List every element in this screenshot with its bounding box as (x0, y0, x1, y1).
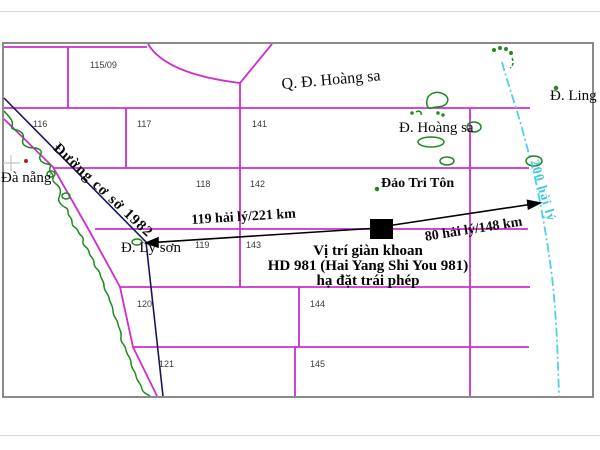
rig-caption-line1: Vị trí giàn khoan (267, 244, 469, 259)
block-117: 117 (137, 120, 151, 129)
rig-caption-line3: hạ đặt trái phép (267, 274, 469, 289)
label-tri-ton-island: Đảo Tri Tôn (381, 177, 454, 191)
block-119: 119 (195, 241, 209, 250)
block-118: 118 (196, 180, 210, 189)
block-142: 142 (250, 180, 265, 189)
block-144: 144 (310, 300, 325, 309)
da-nang-dot (24, 159, 28, 163)
label-da-nang: Đà nẵng (1, 171, 51, 186)
block-143: 143 (246, 241, 261, 250)
block-116: 116 (33, 120, 47, 129)
block-141: 141 (252, 120, 267, 129)
block-121: 121 (159, 360, 174, 369)
block-115-09: 115/09 (90, 61, 117, 70)
label-ly-son-island: Đ. Lý sơn (121, 241, 181, 256)
block-145: 145 (310, 360, 325, 369)
label-ling-island: Đ. Ling (550, 89, 597, 104)
label-hoang-sa-island: Đ. Hoàng sa (399, 121, 474, 136)
rig-marker (370, 219, 393, 239)
rig-caption: Vị trí giàn khoan HD 981 (Hai Yang Shi Y… (267, 244, 469, 289)
rig-caption-line2: HD 981 (Hai Yang Shi You 981) (267, 259, 469, 274)
block-120: 120 (137, 300, 152, 309)
nautical-map-page: Q. Đ. Hoàng sa Đ. Hoàng sa Đ. Ling Đảo T… (0, 0, 600, 450)
